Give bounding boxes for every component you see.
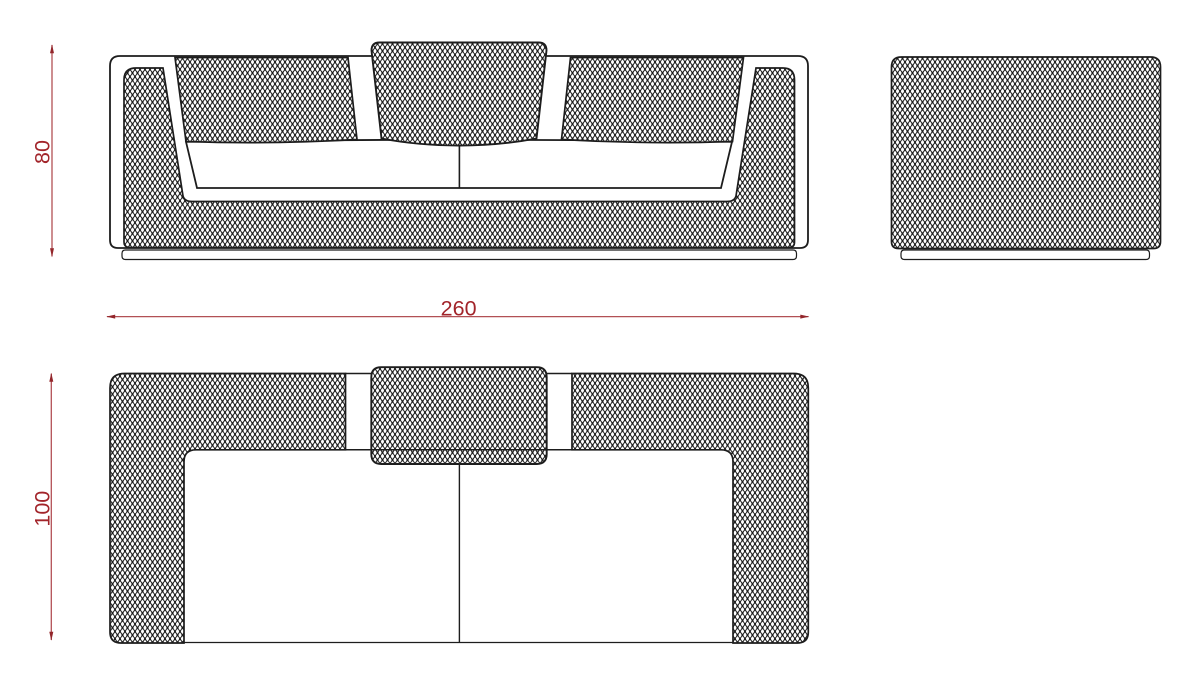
svg-text:100: 100: [31, 491, 55, 527]
svg-text:260: 260: [441, 297, 477, 321]
svg-text:80: 80: [31, 140, 55, 164]
